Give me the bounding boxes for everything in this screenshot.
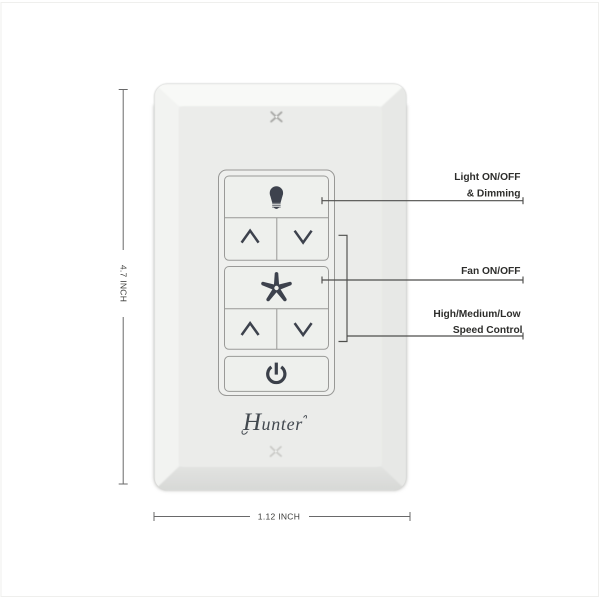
svg-text:High/Medium/Low: High/Medium/Low <box>433 309 520 320</box>
svg-text:unter: unter <box>262 414 304 434</box>
svg-text:Speed Control: Speed Control <box>453 325 523 336</box>
svg-text:4.7 INCH: 4.7 INCH <box>118 265 128 302</box>
svg-text:1.12 INCH: 1.12 INCH <box>258 512 300 522</box>
svg-text:Light ON/OFF: Light ON/OFF <box>454 172 520 183</box>
svg-text:Fan ON/OFF: Fan ON/OFF <box>461 266 520 277</box>
svg-text:& Dimming: & Dimming <box>467 188 521 199</box>
svg-text:H: H <box>242 409 263 436</box>
